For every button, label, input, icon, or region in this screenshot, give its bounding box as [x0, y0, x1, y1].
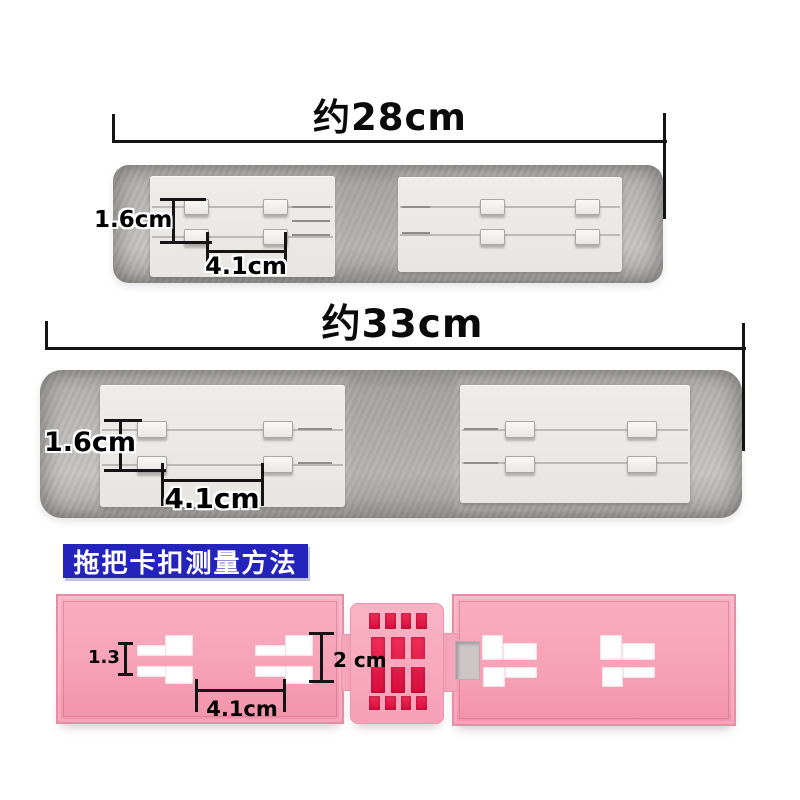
dimension-tick [663, 113, 666, 219]
plate-slot-line [298, 428, 332, 430]
dimension-tick [104, 469, 166, 472]
buckle-slot-cutout [255, 645, 287, 656]
clip-tab [505, 456, 535, 473]
hinge-vent [416, 696, 427, 710]
buckle-slot-cutout [602, 667, 623, 687]
pad-33cm-right-plate [460, 385, 690, 503]
buckle-hinge-height-dimension-line [320, 632, 323, 683]
buckle-section-banner: 拖把卡扣测量方法 [63, 544, 308, 578]
clip-tab [480, 199, 505, 215]
dimension-tick [104, 419, 142, 422]
buckle-hinge-height-label: 2 cm [333, 650, 387, 671]
plate-slot-line [292, 206, 330, 208]
clip-tab [575, 199, 600, 215]
dimension-tick [118, 673, 133, 676]
buckle-slot-cutout [503, 643, 537, 660]
pad-33cm-clip-height-label: 1.6cm [44, 429, 136, 457]
clip-tab [480, 229, 505, 245]
clip-tab [627, 456, 657, 473]
plate-slot-line [464, 428, 498, 430]
plate-slot-line [464, 462, 498, 464]
buckle-slot-cutout [482, 635, 503, 660]
dimension-tick [742, 323, 745, 451]
buckle-right-panel [452, 594, 736, 726]
pad-28cm-length-label: 约28cm [280, 99, 500, 138]
plate-slot-line [292, 234, 330, 236]
hinge-vent [369, 613, 380, 629]
pad-28cm-right-plate [398, 177, 622, 272]
pad-33cm-clip-gap-label: 4.1cm [162, 484, 262, 513]
buckle-slot-cutout [483, 667, 505, 687]
hinge-vent [416, 613, 427, 629]
pad-28cm-clip-height-label: 1.6cm [94, 208, 172, 232]
dimension-tick [112, 114, 115, 143]
buckle-slot-cutout [622, 643, 655, 660]
buckle-slot-cutout [165, 666, 193, 684]
plate-groove [152, 236, 333, 238]
mop-pad-measurement-image: 约28cm 1.6cm 4.1cm 约33cm [0, 0, 800, 800]
buckle-slot-height-label: 1.3 [88, 649, 120, 668]
buckle-slot-cutout [165, 635, 193, 656]
clip-tab [505, 421, 535, 438]
pad-33cm-center-seam [348, 376, 456, 512]
dimension-tick [309, 680, 334, 683]
clip-tab [263, 199, 288, 215]
buckle-slot-cutout [255, 666, 287, 677]
buckle-slot-height-dimension-line [124, 642, 127, 676]
clip-tab [137, 421, 167, 438]
pad-28cm-length-dimension-line [113, 140, 667, 143]
plate-slot-line [298, 462, 332, 464]
buckle-slot-cutout [505, 667, 537, 678]
clip-tab [575, 229, 600, 245]
hinge-vent [369, 696, 380, 710]
dimension-tick [160, 241, 212, 244]
hinge-vent [401, 613, 412, 629]
right-panel-hinge-socket [455, 641, 480, 680]
pad-28cm-clip-gap-label: 4.1cm [203, 254, 289, 279]
buckle-slot-gap-dimension-line [196, 689, 286, 692]
pad-33cm-length-label: 约33cm [295, 305, 510, 346]
hinge-vent [385, 696, 396, 710]
buckle-slot-cutout [137, 645, 167, 656]
pad-28cm-center-seam [338, 170, 396, 278]
plate-slot-line [402, 232, 430, 234]
dimension-tick [45, 321, 48, 350]
hinge-vent [401, 696, 412, 710]
clip-tab [627, 421, 657, 438]
clip-tab [263, 456, 293, 473]
plate-slot-line [402, 206, 430, 208]
buckle-slot-cutout [137, 666, 167, 677]
clip-tab [263, 421, 293, 438]
dimension-tick [160, 198, 206, 201]
clip-tab [184, 199, 209, 215]
plate-slot-line [292, 220, 330, 222]
hinge-vent-row [369, 613, 427, 629]
hinge-vent-row [369, 696, 427, 710]
buckle-slot-gap-label: 4.1cm [198, 698, 286, 720]
buckle-slot-cutout [600, 635, 622, 660]
buckle-slot-cutout [623, 667, 655, 678]
pad-28cm-clip-height-dimension-line [172, 198, 175, 244]
buckle-slot-cutout [285, 635, 313, 656]
hinge-vent [385, 613, 396, 629]
pad-33cm-length-dimension-line [46, 347, 746, 350]
